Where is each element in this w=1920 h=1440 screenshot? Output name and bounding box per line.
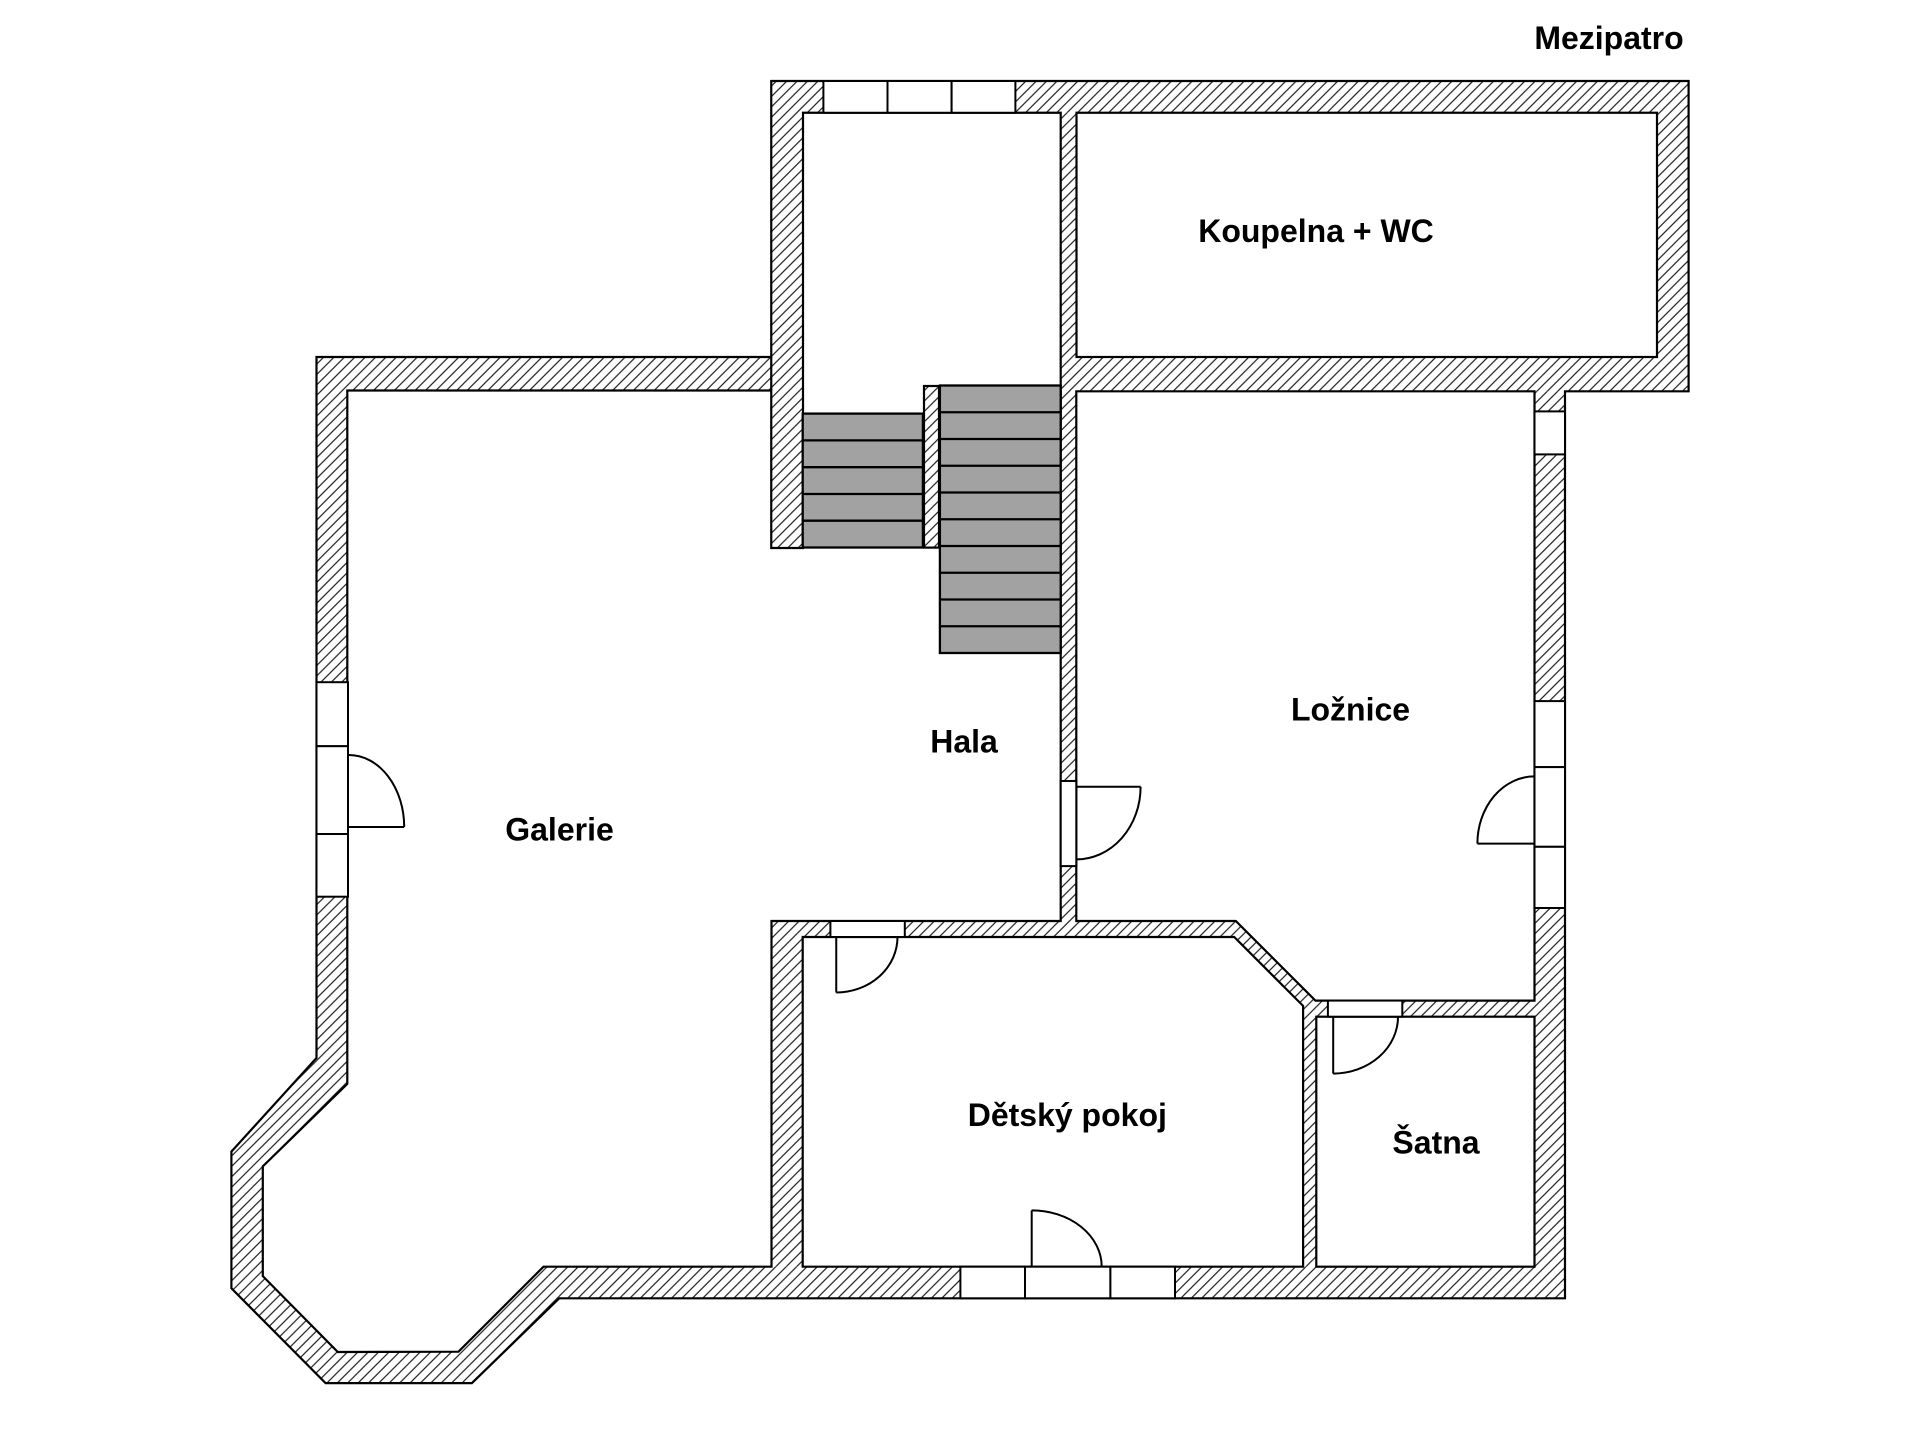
svg-text:Šatna: Šatna <box>1392 1125 1479 1161</box>
svg-text:Ložnice: Ložnice <box>1291 692 1410 728</box>
svg-text:Hala: Hala <box>930 724 998 760</box>
svg-text:Galerie: Galerie <box>505 812 614 848</box>
svg-text:Dětský pokoj: Dětský pokoj <box>968 1097 1167 1133</box>
svg-text:Koupelna + WC: Koupelna + WC <box>1198 213 1434 249</box>
svg-text:Mezipatro: Mezipatro <box>1534 20 1683 56</box>
